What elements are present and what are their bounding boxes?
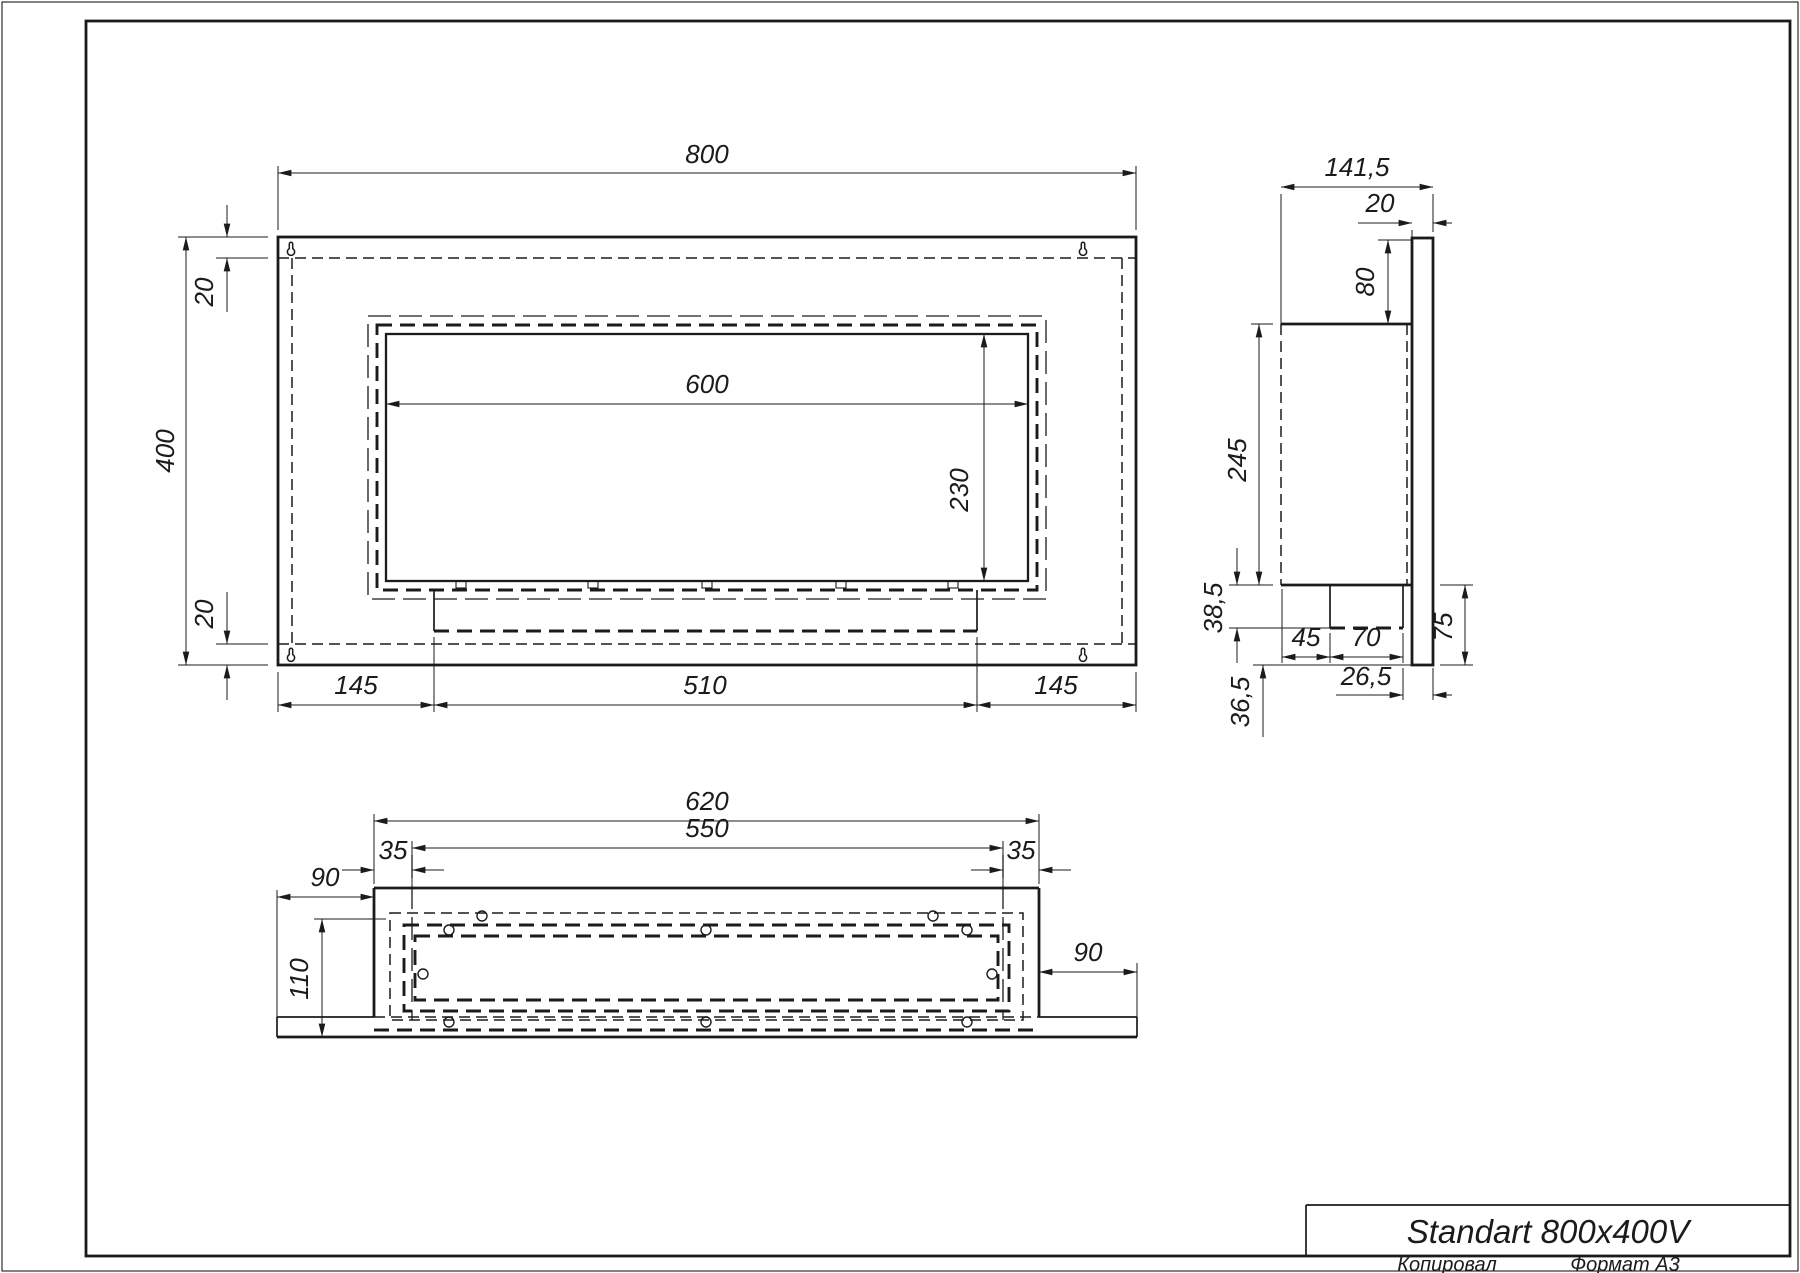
dim-label-230: 230 [944,468,974,513]
dim-depth: 141,5 [1281,152,1433,324]
dim-back-gap: 26,5 [1336,661,1452,700]
dim-label-80: 80 [1350,267,1380,296]
dim-label-145-right: 145 [1034,670,1078,700]
title-block: Standart 800x400V [1306,1205,1790,1256]
dim-label-145-left: 145 [334,670,378,700]
dim-label-35-left: 35 [379,835,408,865]
dim-flange-right: 90 [1039,937,1137,1017]
front-view: 800 400 20 20 600 [150,139,1136,712]
dim-label-245: 245 [1222,438,1252,483]
dim-bottom-wall: 20 [189,592,268,700]
side-view: 141,5 20 80 245 38,5 [1198,152,1473,737]
dim-label-35-right: 35 [1007,835,1036,865]
dim-label-45: 45 [1292,622,1321,652]
dim-label-20-panel: 20 [1365,188,1395,218]
dim-top-wall: 20 [189,205,268,312]
drawing-title: Standart 800x400V [1407,1213,1693,1250]
dim-top-drop: 80 [1350,240,1412,324]
dim-label-600: 600 [685,369,729,399]
dim-label-70: 70 [1352,622,1381,652]
dim-label-20-bottom: 20 [189,599,219,629]
dim-label-400: 400 [150,429,180,473]
dim-label-141-5: 141,5 [1324,152,1390,182]
page-border [2,2,1798,1271]
dim-label-90-right: 90 [1074,937,1103,967]
dim-opening-height: 230 [944,334,984,581]
dim-opening-width: 600 [386,369,1028,404]
dim-label-38-5: 38,5 [1198,582,1228,633]
dim-tray-row: 45 70 [1282,589,1403,663]
dim-label-20-top: 20 [189,277,219,307]
dim-label-26-5: 26,5 [1340,661,1392,691]
dim-label-800: 800 [685,139,729,169]
dim-body-height: 245 [1222,324,1273,585]
drawing-sheet: 800 400 20 20 600 [0,0,1800,1273]
dim-label-110: 110 [284,958,314,1000]
dim-panel-tail: 75 [1428,585,1473,665]
dim-back-panel: 20 [1358,188,1452,248]
dim-bottom-row: 145 510 145 [278,637,1136,712]
dim-label-36-5: 36,5 [1225,676,1255,727]
dim-label-550: 550 [685,813,729,843]
bottom-view: 620 550 35 35 90 90 [277,786,1137,1037]
dim-depth-bottom: 110 [284,919,386,1037]
drawing-canvas: 800 400 20 20 600 [0,0,1800,1273]
footer-copied-by: Копировал [1397,1254,1496,1273]
dim-opening-width-bottom: 550 [412,813,1003,888]
dim-label-620: 620 [685,786,729,816]
footer-format: Формат A3 [1570,1254,1679,1273]
dim-label-75: 75 [1428,612,1458,641]
dim-label-510: 510 [683,670,727,700]
dim-label-90-left: 90 [311,862,340,892]
dim-front-width: 800 [278,139,1136,230]
